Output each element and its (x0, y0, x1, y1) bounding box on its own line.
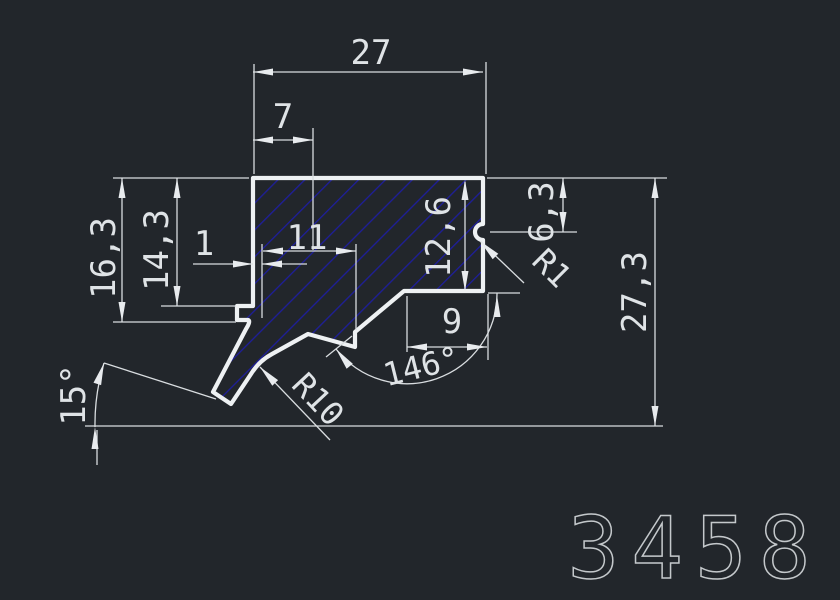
dim-label-left-outer: 16,3 (84, 217, 124, 299)
dim-label-total-height: 27,3 (615, 251, 655, 333)
cad-drawing-viewport: 27 7 11 1 9 146° 16,3 14,3 12,6 6,3 27,3… (0, 0, 840, 600)
dim-label-edge-offset: 1 (194, 224, 214, 264)
part-number-label: 3458 (567, 499, 822, 599)
dim-label-left-inner: 14,3 (137, 209, 177, 291)
dim-label-top-width: 27 (351, 33, 392, 73)
cad-drawing-canvas: 27 7 11 1 9 146° 16,3 14,3 12,6 6,3 27,3… (0, 0, 840, 600)
dim-label-right-depth: 12,6 (419, 196, 459, 278)
dim-label-bottom-width: 9 (442, 302, 462, 342)
dim-label-inner-width: 11 (287, 218, 328, 258)
dim-label-top-offset: 7 (273, 97, 293, 137)
dim-label-leg-angle: 15° (54, 364, 94, 425)
dim-label-notch-offset: 6,3 (522, 181, 562, 242)
